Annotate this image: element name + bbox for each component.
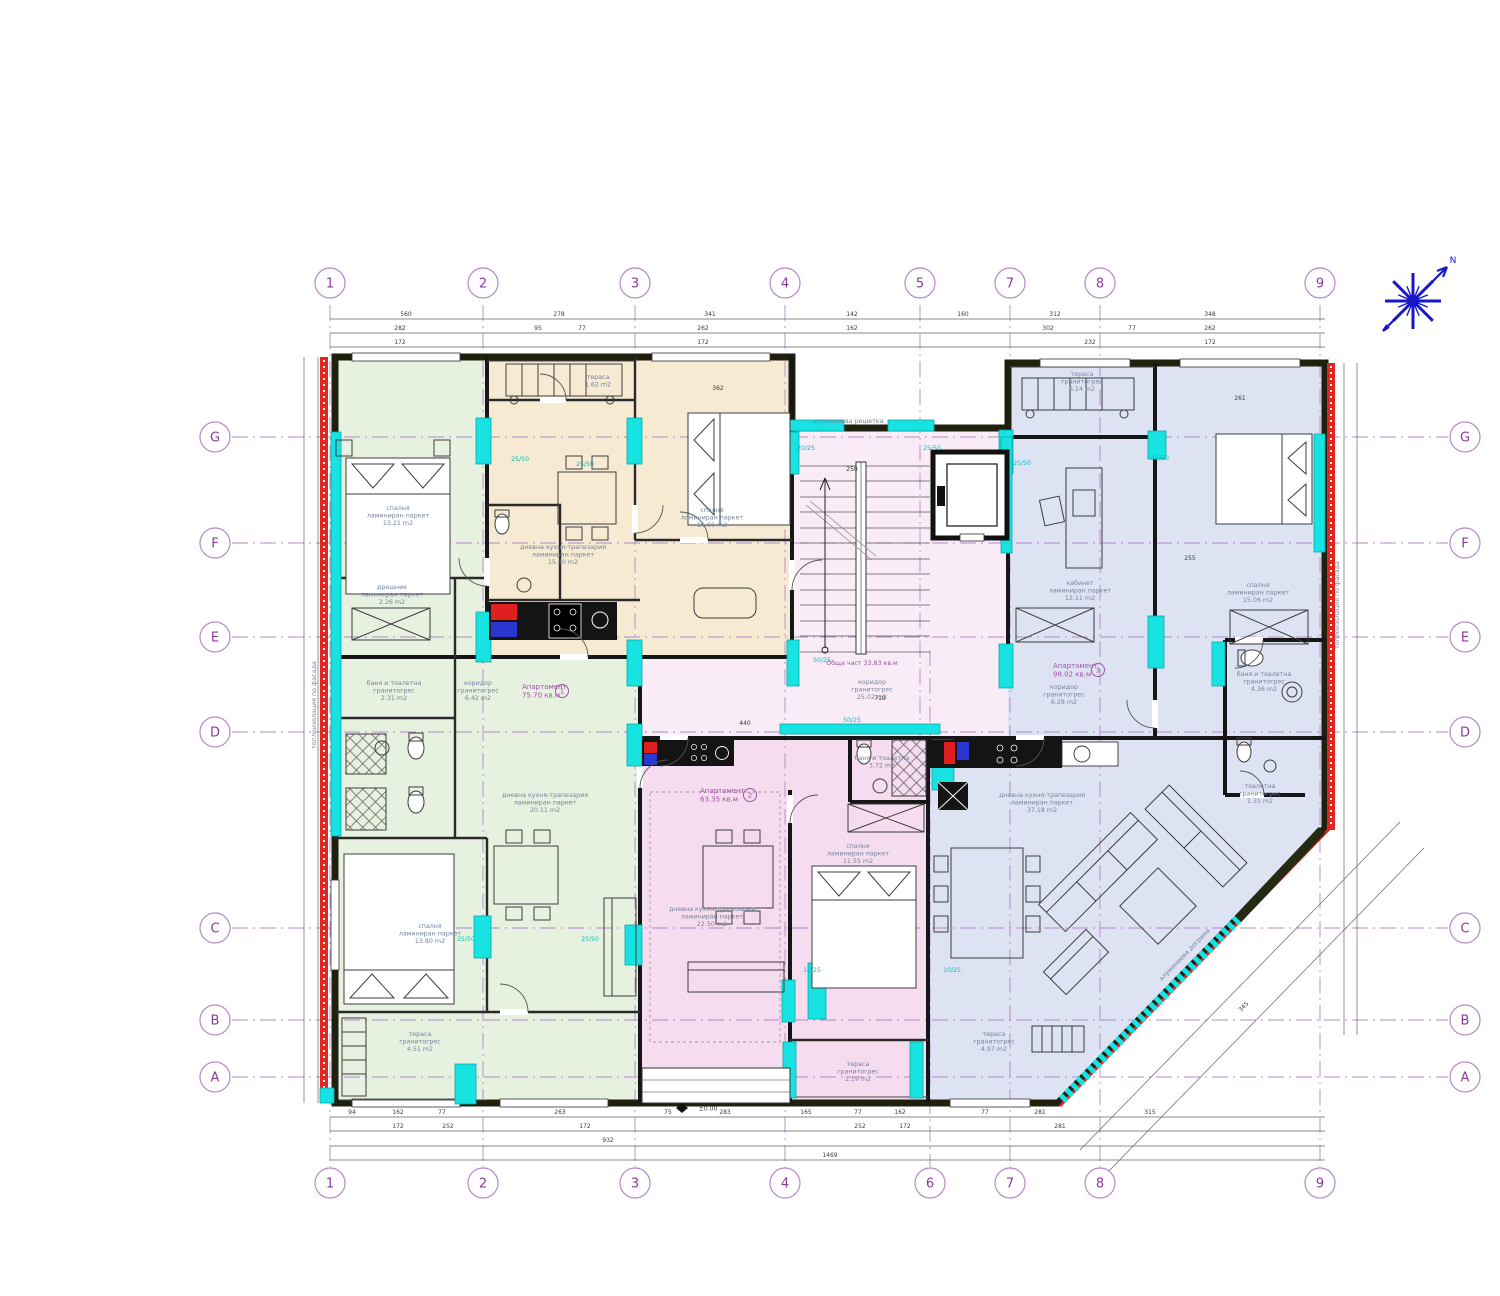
room-label: 4.51 m2	[407, 1046, 433, 1053]
dimension-label: 252	[854, 1123, 866, 1130]
column-size-label: 25/50	[576, 461, 594, 468]
room-label: тераса	[587, 374, 610, 381]
column-size-label: 25/50	[457, 936, 475, 943]
entrance-porch	[642, 1068, 790, 1103]
grid-bubble-label: B	[211, 1014, 220, 1029]
dimension-label: 172	[697, 339, 709, 346]
room-label: ламиниран паркет	[399, 930, 462, 937]
column-size-label: 25/50	[581, 936, 599, 943]
room-label: 6.14 m2	[1069, 386, 1095, 393]
room-label: 13.80 m2	[415, 938, 445, 945]
north-arrow-icon	[1383, 267, 1447, 331]
dimension-label: 160	[957, 311, 969, 318]
grid-bubble-label: D	[210, 726, 220, 741]
grid-bubble-label: C	[210, 922, 219, 937]
room-label: 22.50 m2	[697, 921, 727, 928]
dimension-label: 261	[1234, 395, 1246, 402]
grid-bubble-label: 6	[926, 1177, 934, 1192]
column-size-label: 25/50	[511, 456, 529, 463]
dimension-label: 1469	[822, 1152, 837, 1159]
room-label: ламиниран паркет	[514, 799, 577, 806]
dimension-label: 281	[1054, 1123, 1066, 1130]
dimension-label: 315	[1144, 1109, 1156, 1116]
kitchen-run	[489, 602, 617, 640]
dimension-label: 348	[1204, 311, 1216, 318]
floor-plan-canvas: спалняламиниран паркет13.21 m2дрешниклам…	[0, 0, 1500, 1296]
dimension-label: 710	[874, 695, 886, 702]
room-label: тераса	[983, 1031, 1006, 1038]
grid-bubble-label: 1	[326, 1177, 334, 1192]
room-label: 6.42 m2	[465, 695, 491, 702]
dimension-label: 283	[719, 1109, 731, 1116]
room-label: спалня	[386, 505, 410, 512]
column-size-label: 20/25	[797, 445, 815, 452]
room-label: гранитогрес	[1243, 678, 1285, 685]
room-label: спалня	[700, 507, 724, 514]
dimension-label: 341	[704, 311, 716, 318]
column-size-label: 50/25	[813, 657, 831, 664]
dimension-label: 142	[846, 311, 858, 318]
dimension-label: 77	[438, 1109, 446, 1116]
dimension-label: 560	[400, 311, 412, 318]
grid-bubble-label: 9	[1316, 277, 1324, 292]
grid-bubble-label: 2	[479, 1177, 487, 1192]
room-label: 3.72 m2	[869, 762, 895, 769]
room-label: спалня	[1246, 582, 1270, 589]
room-label: дневна кухня-трапезария	[999, 792, 1085, 799]
bed	[1216, 434, 1312, 524]
grid-bubble-label: B	[1461, 1014, 1470, 1029]
floor-plan-page: спалняламиниран паркет13.21 m2дрешниклам…	[0, 0, 1500, 1296]
grid-bubble-label: E	[1461, 631, 1469, 646]
room-label: гранитогрес	[973, 1038, 1015, 1045]
room-label: 2.31 m2	[381, 695, 407, 702]
grid-bubble-label: 5	[916, 277, 924, 292]
room-label: дневна кухня-трапезария	[502, 792, 588, 799]
dimension-label: 162	[846, 325, 858, 332]
column-size-label: 10/25	[803, 967, 821, 974]
room-label: ламиниран паркет	[1049, 587, 1112, 594]
room-label: ламиниран паркет	[532, 551, 595, 558]
elevator	[933, 452, 1007, 541]
north-label: N	[1450, 256, 1457, 266]
room-label: 4.36 m2	[1251, 686, 1277, 693]
dimension-label: 172	[579, 1123, 591, 1130]
compass-rose: N	[1383, 256, 1456, 331]
room-label: спалня	[418, 923, 442, 930]
room-label: 15.06 m2	[1243, 597, 1273, 604]
room-label: гранитогрес	[373, 687, 415, 694]
bed	[812, 866, 916, 988]
room-label: ламиниран паркет	[1227, 589, 1290, 596]
room-label: гранитогрес	[1043, 691, 1085, 698]
room-label: гранитогрес	[1239, 790, 1281, 797]
grid-bubble-label: 7	[1006, 1177, 1014, 1192]
grid-bubble-label: C	[1460, 922, 1469, 937]
column-size-label: 25/50	[1013, 460, 1031, 467]
apartment-area-label: 98.02 кв.м	[1053, 671, 1091, 679]
room-label: дрешник	[377, 584, 407, 591]
grid-bubble-label: G	[210, 431, 220, 446]
room-label: 1.31 m2	[1247, 798, 1273, 805]
room-label: ламиниран паркет	[367, 512, 430, 519]
dimension-label: 250	[846, 466, 858, 473]
dimension-label: 162	[392, 1109, 404, 1116]
room-label: 6.28 m2	[1051, 699, 1077, 706]
room-label: тераса	[847, 1061, 870, 1068]
room-label: гранитогрес	[851, 686, 893, 693]
room-label: коридор	[858, 679, 886, 686]
dimension-label: 77	[1128, 325, 1136, 332]
dimension-label: 312	[1049, 311, 1061, 318]
dimension-label: 77	[981, 1109, 989, 1116]
room-label: Обща част 33.83 кв.м	[826, 659, 898, 667]
dimension-label: 95	[534, 325, 542, 332]
grid-bubble-label: 4	[781, 1177, 789, 1192]
dimension-label: 281	[1034, 1109, 1046, 1116]
column-size-label: 50/25	[843, 717, 861, 724]
grid-bubble-label: E	[211, 631, 219, 646]
dimension-label: 440	[739, 720, 751, 727]
room-label: баня и тоалетна	[1237, 670, 1292, 678]
grid-bubble-label: A	[211, 1071, 220, 1086]
room-label: гранитогрес	[1061, 378, 1103, 385]
grid-bubble-label: 9	[1316, 1177, 1324, 1192]
dimension-label: 172	[899, 1123, 911, 1130]
grid-bubble-label: 4	[781, 277, 789, 292]
room-label: баня и тоалетна	[855, 754, 910, 762]
dimension-label: 172	[1204, 339, 1216, 346]
apartment-label: Апартамент	[1053, 662, 1098, 670]
room-label: дневна кухня-трапезария	[669, 906, 755, 913]
apartment-number: 3	[1096, 667, 1100, 675]
dimension-label: 172	[392, 1123, 404, 1130]
dimension-label: 165	[800, 1109, 812, 1116]
room-label: 1.62 m2	[585, 381, 611, 388]
room-label: 11.55 m2	[843, 858, 873, 865]
apartment-area-label: 63.35 кв.м	[700, 796, 738, 804]
dimension-label: 262	[1204, 325, 1216, 332]
grid-bubble-label: 2	[479, 277, 487, 292]
room-label: ламиниран паркет	[827, 850, 890, 857]
column-size-label: 10/25	[943, 967, 961, 974]
dimension-label: 278	[553, 311, 565, 318]
room-label: коридор	[464, 680, 492, 687]
room-label: тоалетна	[1245, 783, 1276, 790]
appliance-hatch	[938, 782, 968, 810]
kitchen-run	[642, 740, 734, 766]
dimension-label: 302	[1042, 325, 1054, 332]
column-size-label: 25/50	[923, 445, 941, 452]
room-label: 2.19 m2	[845, 1076, 871, 1083]
room-label: дневна кухня-трапезария	[520, 544, 606, 551]
dimension-label: 94	[348, 1109, 356, 1116]
room-label: спалня	[846, 843, 870, 850]
room-label: гранитогрес	[837, 1068, 879, 1075]
room-label: 37.18 m2	[1027, 807, 1057, 814]
dimension-label: 262	[697, 325, 709, 332]
dimension-label: 362	[712, 385, 724, 392]
room-label: кабинет	[1066, 579, 1094, 587]
room-label: топлоизолация по фасада	[1334, 561, 1341, 649]
grid-bubble-label: 8	[1096, 277, 1104, 292]
grid-bubble-label: F	[211, 537, 218, 552]
grid-bubble-label: F	[1461, 537, 1468, 552]
apartment-number: 1	[560, 688, 564, 696]
room-label: 15.66 m2	[697, 522, 727, 529]
grid-bubble-label: 8	[1096, 1177, 1104, 1192]
level-marker-label: ±0.00	[699, 1106, 718, 1113]
room-label: 12.11 m2	[1065, 595, 1095, 602]
dimension-label: 75	[664, 1109, 672, 1116]
apartment-number: 2	[748, 792, 752, 800]
room-label: ламиниран паркет	[361, 591, 424, 598]
room-label: баня и тоалетна	[367, 679, 422, 687]
dimension-label: 255	[1184, 555, 1196, 562]
room-label: ламиниран паркет	[1011, 799, 1074, 806]
room-label: топлоизолация по фасада	[311, 661, 318, 749]
room-label: гранитогрес	[399, 1038, 441, 1045]
grid-bubble-label: A	[1461, 1071, 1470, 1086]
dimension-label: 345	[1237, 1000, 1250, 1013]
grid-bubble-label: G	[1460, 431, 1470, 446]
column-size-label: 25/50	[1151, 455, 1169, 462]
dimension-label: 932	[602, 1137, 614, 1144]
room-label: тераса	[409, 1031, 432, 1038]
room-label: 15.60 m2	[548, 559, 578, 566]
room-label: тераса	[1071, 371, 1094, 378]
grid-bubble-label: 1	[326, 277, 334, 292]
room-label: коридор	[1050, 684, 1078, 691]
grid-bubble-label: 3	[631, 1177, 639, 1192]
dimension-label: 162	[894, 1109, 906, 1116]
dimension-label: 77	[854, 1109, 862, 1116]
apartment-label: Апартамент	[700, 787, 745, 795]
dimension-label: 172	[394, 339, 406, 346]
room-label: 2.26 m2	[379, 599, 405, 606]
dimension-label: 252	[442, 1123, 454, 1130]
dimension-label: 282	[394, 325, 406, 332]
room-label: алуминиева решетка	[813, 418, 884, 425]
room-label: ламиниран паркет	[681, 913, 744, 920]
grid-bubble-label: 3	[631, 277, 639, 292]
room-label: 4.97 m2	[981, 1046, 1007, 1053]
grid-bubble-label: 7	[1006, 277, 1014, 292]
room-label: гранитогрес	[457, 687, 499, 694]
room-label: ламиниран паркет	[681, 514, 744, 521]
dimension-label: 263	[554, 1109, 566, 1116]
apartment-area-label: 75.70 кв.м	[522, 692, 560, 700]
grid-bubble-label: D	[1460, 726, 1470, 741]
dimension-label: 77	[578, 325, 586, 332]
shower	[892, 740, 926, 796]
dimension-label: 232	[1084, 339, 1096, 346]
room-label: 20.11 m2	[530, 807, 560, 814]
room-label: 13.21 m2	[383, 520, 413, 527]
